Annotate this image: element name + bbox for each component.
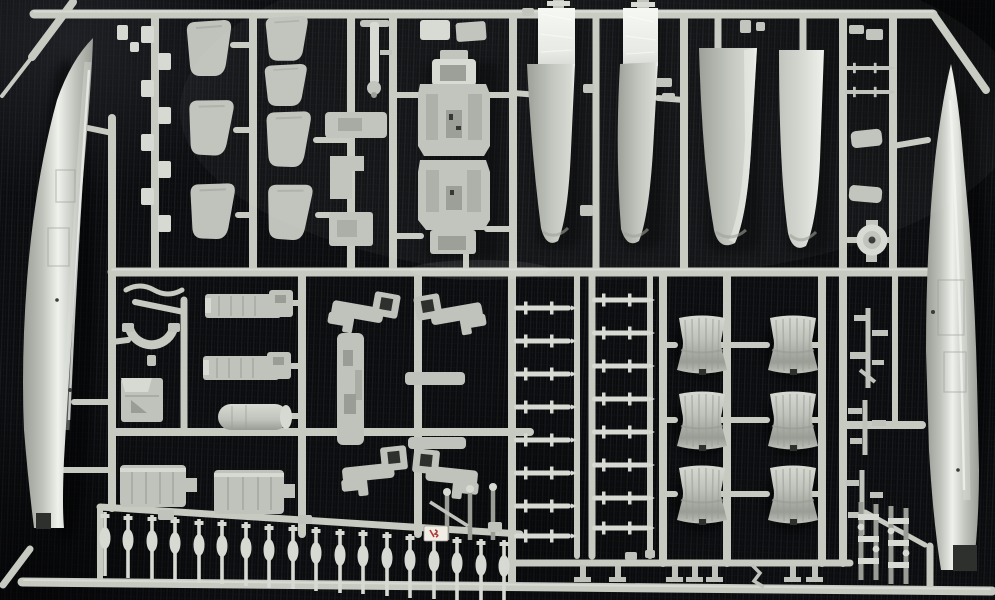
- fuselage-notch: [953, 545, 977, 571]
- gear-door-part: landing gear door: [337, 333, 364, 445]
- part-number-sticker: tiny white part-number sticker with red …: [424, 526, 448, 541]
- instrument-box-part: instrument box: [121, 378, 163, 422]
- fuselage-notch: [36, 513, 51, 529]
- photo: Photograph of a light-grey injection-mou…: [0, 0, 995, 600]
- drop-tank-part: cylindrical tank: [218, 404, 292, 430]
